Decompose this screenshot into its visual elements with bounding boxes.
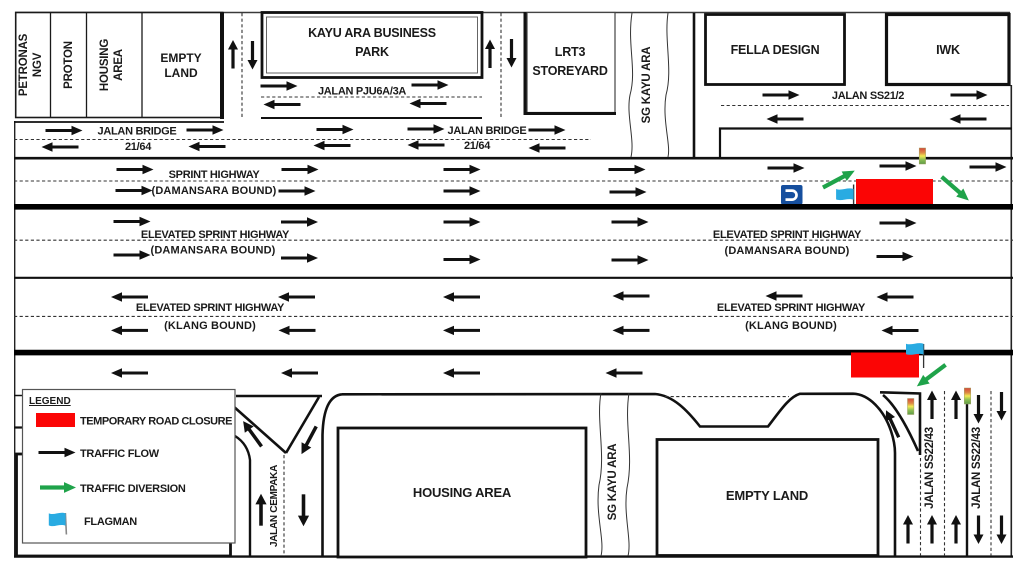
svg-text:SG KAYU ARA: SG KAYU ARA: [641, 47, 653, 124]
svg-text:IWK: IWK: [936, 43, 960, 57]
svg-text:KAYU ARA BUSINESS: KAYU ARA BUSINESS: [308, 26, 436, 40]
svg-text:ELEVATED SPRINT HIGHWAY: ELEVATED SPRINT HIGHWAY: [717, 302, 866, 314]
svg-text:(KLANG BOUND): (KLANG BOUND): [745, 320, 837, 332]
svg-text:JALAN BRIDGE: JALAN BRIDGE: [448, 125, 527, 137]
svg-text:JALAN SS21/2: JALAN SS21/2: [832, 90, 904, 102]
svg-text:(DAMANSARA BOUND): (DAMANSARA BOUND): [151, 245, 276, 257]
svg-text:(DAMANSARA BOUND): (DAMANSARA BOUND): [725, 245, 850, 257]
svg-text:AREA: AREA: [113, 49, 125, 81]
svg-text:HOUSING AREA: HOUSING AREA: [413, 485, 512, 500]
svg-text:PROTON: PROTON: [63, 41, 75, 89]
svg-text:JALAN SS22/43: JALAN SS22/43: [924, 427, 936, 509]
svg-text:TEMPORARY ROAD CLOSURE: TEMPORARY ROAD CLOSURE: [80, 416, 232, 428]
svg-text:LEGEND: LEGEND: [29, 396, 71, 407]
svg-text:21/64: 21/64: [125, 141, 152, 153]
svg-text:JALAN SS22/43: JALAN SS22/43: [971, 427, 983, 509]
svg-text:EMPTY LAND: EMPTY LAND: [726, 488, 808, 503]
svg-text:HOUSING: HOUSING: [99, 39, 111, 92]
svg-text:JALAN CEMPAKA: JALAN CEMPAKA: [269, 465, 280, 547]
svg-text:SPRINT HIGHWAY: SPRINT HIGHWAY: [169, 169, 261, 181]
svg-text:(DAMANSARA BOUND): (DAMANSARA BOUND): [152, 185, 277, 197]
svg-text:(KLANG BOUND): (KLANG BOUND): [164, 320, 256, 332]
svg-text:ELEVATED SPRINT HIGHWAY: ELEVATED SPRINT HIGHWAY: [141, 229, 290, 241]
svg-text:21/64: 21/64: [464, 140, 491, 152]
svg-text:ELEVATED SPRINT HIGHWAY: ELEVATED SPRINT HIGHWAY: [713, 229, 862, 241]
svg-text:NGV: NGV: [32, 52, 44, 77]
svg-text:JALAN PJU6A/3A: JALAN PJU6A/3A: [318, 86, 406, 98]
svg-text:PARK: PARK: [355, 45, 389, 59]
svg-text:LRT3: LRT3: [555, 45, 586, 59]
svg-text:SG KAYU ARA: SG KAYU ARA: [607, 444, 619, 521]
svg-text:LAND: LAND: [164, 66, 198, 80]
svg-text:FELLA DESIGN: FELLA DESIGN: [731, 43, 820, 57]
svg-text:JALAN BRIDGE: JALAN BRIDGE: [98, 126, 177, 138]
svg-text:FLAGMAN: FLAGMAN: [84, 516, 137, 528]
svg-text:PETRONAS: PETRONAS: [18, 33, 30, 96]
svg-text:TRAFFIC FLOW: TRAFFIC FLOW: [80, 448, 160, 460]
svg-text:ELEVATED SPRINT HIGHWAY: ELEVATED SPRINT HIGHWAY: [136, 302, 285, 314]
svg-text:EMPTY: EMPTY: [160, 51, 201, 65]
svg-text:TRAFFIC DIVERSION: TRAFFIC DIVERSION: [80, 483, 186, 495]
svg-text:STOREYARD: STOREYARD: [532, 64, 607, 78]
